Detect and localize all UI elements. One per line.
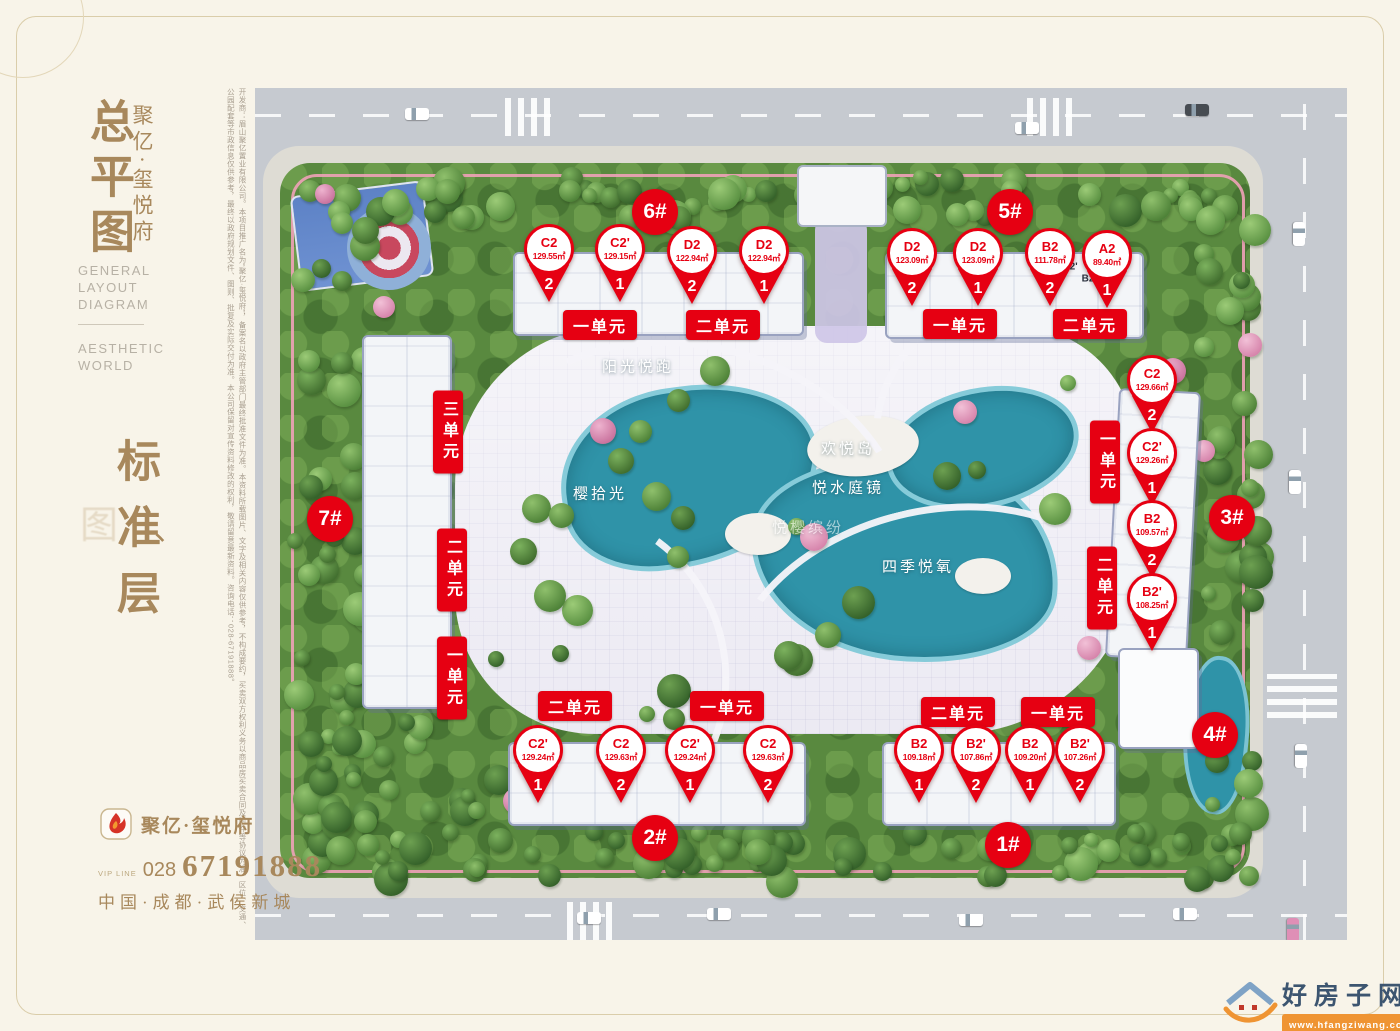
pin-head: B2109.57㎡	[1127, 500, 1177, 550]
unit-area: 89.40㎡	[1093, 256, 1121, 268]
unit-pin: B2109.57㎡2	[1124, 500, 1180, 580]
unit-label: 二单元	[1087, 547, 1117, 630]
tree	[608, 832, 625, 849]
flame-logo-icon	[100, 808, 132, 840]
building-number-badge: 3#	[1209, 495, 1255, 541]
tree	[562, 595, 593, 626]
tree	[284, 680, 314, 710]
pin-head: B2109.20㎡	[1005, 725, 1055, 775]
tree	[1141, 191, 1171, 221]
unit-area: 129.15㎡	[604, 250, 636, 262]
tree	[968, 461, 986, 479]
tree	[893, 196, 921, 224]
unit-number: 1	[1002, 777, 1058, 795]
car	[707, 908, 731, 920]
phone-number: 67191888	[182, 848, 322, 884]
watermark-url: www.hfangziwang.com	[1289, 1020, 1400, 1031]
tree	[327, 373, 361, 407]
tree	[379, 780, 399, 800]
tree	[354, 810, 377, 833]
tree	[388, 861, 408, 881]
car	[1173, 908, 1197, 920]
unit-label: 一单元	[1021, 697, 1095, 727]
unit-type: A2	[1099, 242, 1116, 256]
car	[1287, 918, 1299, 940]
unit-area: 129.26㎡	[1136, 454, 1168, 466]
crosswalk	[505, 98, 553, 136]
unit-label: 二单元	[538, 691, 612, 721]
tree	[294, 650, 310, 666]
tree	[1205, 797, 1220, 812]
tree	[708, 178, 740, 210]
logo-brand-text: 聚亿·玺悦府	[141, 811, 254, 838]
tree	[1078, 183, 1101, 206]
tree	[510, 538, 537, 565]
tree	[1097, 839, 1120, 862]
en-tagline-line: WORLD	[78, 357, 164, 374]
unit-number: 1	[662, 777, 718, 795]
unit-area: 123.09㎡	[962, 254, 994, 266]
tree	[534, 580, 566, 612]
pin-head: C2129.63㎡	[743, 725, 793, 775]
tree	[1239, 214, 1271, 246]
building-number-badge: 1#	[985, 822, 1031, 868]
pin-head: B2'108.25㎡	[1127, 573, 1177, 623]
unit-type: C2'	[1142, 440, 1162, 454]
crosswalk	[1267, 674, 1337, 718]
en-title-line: DIAGRAM	[78, 296, 164, 313]
car	[577, 912, 601, 924]
en-title-line: GENERAL	[78, 262, 164, 279]
tree	[352, 217, 379, 244]
building-4	[1118, 648, 1199, 749]
pin-head: A289.40㎡	[1082, 230, 1132, 280]
pin-head: D2122.94㎡	[739, 226, 789, 276]
tree	[346, 772, 361, 787]
tree	[559, 180, 581, 202]
car	[1289, 470, 1301, 494]
watermark-site-name: 好房子网	[1282, 976, 1400, 1012]
tree	[488, 651, 504, 667]
tree	[552, 645, 569, 662]
car	[1185, 104, 1209, 116]
pin-head: B2'107.86㎡	[951, 725, 1001, 775]
tree	[940, 168, 964, 192]
unit-type: B2'	[966, 737, 986, 751]
unit-pin: C2129.63㎡2	[593, 725, 649, 805]
divider-line	[78, 324, 144, 325]
tree	[1039, 493, 1071, 525]
unit-type: C2	[541, 236, 558, 250]
unit-number: 2	[1052, 777, 1108, 795]
tree	[667, 389, 690, 412]
tree	[895, 177, 910, 192]
logo-block: 聚亿·玺悦府	[100, 808, 254, 840]
pin-head: C2'129.26㎡	[1127, 428, 1177, 478]
watermark: 好房子网 www.hfangziwang.com	[1222, 976, 1400, 1031]
road-lane-marking	[1303, 88, 1306, 940]
tree	[1244, 440, 1273, 469]
tree	[398, 714, 415, 731]
car	[405, 108, 429, 120]
unit-number: 2	[740, 777, 796, 795]
tree	[700, 356, 730, 386]
unit-number: 2	[884, 280, 940, 298]
unit-area: 109.20㎡	[1014, 751, 1046, 763]
unit-area: 129.55㎡	[533, 250, 565, 262]
unit-number: 1	[950, 280, 1006, 298]
building-number-badge: 7#	[307, 496, 353, 542]
tree	[522, 494, 551, 523]
tree	[1184, 866, 1210, 892]
tree	[524, 846, 541, 863]
tree	[1239, 866, 1259, 886]
unit-label: 二单元	[1053, 309, 1127, 339]
watermark-text-block: 好房子网 www.hfangziwang.com	[1282, 976, 1400, 1031]
tree	[468, 802, 485, 819]
tree	[461, 789, 475, 803]
tree	[424, 201, 446, 223]
building-number-badge: 2#	[632, 815, 678, 861]
en-tagline-line: AESTHETIC	[78, 340, 164, 357]
unit-label: 一单元	[437, 637, 467, 720]
unit-pin: D2123.09㎡1	[950, 228, 1006, 308]
tree	[549, 503, 574, 528]
tree	[319, 546, 336, 563]
unit-pin: C2129.66㎡2	[1124, 355, 1180, 435]
corner-arc-decoration	[0, 0, 84, 78]
tree	[1060, 375, 1076, 391]
cherry-blossom-tree	[373, 296, 395, 318]
unit-number: 1	[510, 777, 566, 795]
tree	[1233, 272, 1250, 289]
unit-number: 2	[1022, 280, 1078, 298]
pin-head: B2111.78㎡	[1025, 228, 1075, 278]
unit-pin: B2111.78㎡2	[1022, 228, 1078, 308]
unit-pin: B2109.18㎡1	[891, 725, 947, 805]
unit-pin: C2129.63㎡2	[740, 725, 796, 805]
phone-area-code: 028	[143, 859, 176, 882]
park-feature-label: 欢悦岛	[821, 438, 875, 459]
unit-area: 122.94㎡	[676, 252, 708, 264]
entrance-walkway	[815, 218, 867, 343]
unit-type: C2	[1144, 367, 1161, 381]
unit-area: 122.94㎡	[748, 252, 780, 264]
tree	[312, 259, 331, 278]
unit-label: 二单元	[437, 529, 467, 612]
tree	[329, 684, 345, 700]
unit-number: 1	[592, 276, 648, 294]
english-subtitle: GENERAL LAYOUT DIAGRAM AESTHETIC WORLD	[78, 262, 164, 374]
tree	[339, 710, 354, 725]
unit-label: 一单元	[1090, 421, 1120, 504]
tree	[842, 586, 875, 619]
tree	[1211, 835, 1228, 852]
pin-head: C2129.55㎡	[524, 224, 574, 274]
tree	[1241, 589, 1264, 612]
unit-type: B2	[1144, 512, 1161, 526]
tree	[1127, 824, 1145, 842]
unit-label: 三单元	[433, 391, 463, 474]
tree	[399, 832, 432, 865]
tree	[774, 641, 803, 670]
unit-area: 123.09㎡	[896, 254, 928, 266]
unit-number: 1	[1124, 625, 1180, 643]
unit-label: 二单元	[921, 697, 995, 727]
tree	[486, 192, 515, 221]
unit-type: C2	[760, 737, 777, 751]
tree	[1129, 844, 1151, 866]
pin-head: C2129.63㎡	[596, 725, 646, 775]
unit-area: 107.86㎡	[960, 751, 992, 763]
pin-head: D2122.94㎡	[667, 226, 717, 276]
unit-number: 1	[1124, 480, 1180, 498]
tree	[608, 448, 634, 474]
address-line: 中国·成都·武侯新城	[98, 888, 295, 913]
tree	[595, 848, 614, 867]
tree	[745, 839, 771, 865]
unit-number: 2	[521, 276, 577, 294]
tree	[538, 864, 561, 887]
tree	[299, 475, 323, 499]
tree	[420, 801, 441, 822]
unit-type: D2	[970, 240, 987, 254]
cherry-blossom-tree	[1077, 636, 1101, 660]
tree	[1196, 258, 1223, 285]
unit-number: 1	[891, 777, 947, 795]
unit-type: B2	[911, 737, 928, 751]
tree	[1225, 849, 1241, 865]
cherry-blossom-tree	[590, 418, 616, 444]
unit-pin: B2'107.86㎡2	[948, 725, 1004, 805]
unit-number: 2	[593, 777, 649, 795]
tree	[287, 533, 303, 549]
pin-head: B2'107.26㎡	[1055, 725, 1105, 775]
vip-line-label: VIP LINE	[98, 869, 137, 878]
tree	[1061, 837, 1078, 854]
tree	[1232, 391, 1257, 416]
tree	[326, 836, 355, 865]
tree	[298, 350, 320, 372]
tree	[755, 180, 777, 202]
unit-pin: A289.40㎡1	[1079, 230, 1135, 310]
unit-type: D2	[756, 238, 773, 252]
tree	[933, 462, 961, 490]
park-feature-label: 悦樱缤纷	[772, 517, 844, 538]
tree	[1241, 479, 1259, 497]
tree	[331, 212, 353, 234]
unit-pin: B2'107.26㎡2	[1052, 725, 1108, 805]
brand-vertical: 聚亿·玺悦府	[127, 104, 157, 246]
unit-type: C2'	[528, 737, 548, 751]
unit-area: 108.25㎡	[1136, 599, 1168, 611]
unit-area: 109.18㎡	[903, 751, 935, 763]
tree	[452, 206, 475, 229]
tree	[1194, 337, 1214, 357]
unit-area: 129.24㎡	[522, 751, 554, 763]
tree	[873, 862, 892, 881]
tree	[321, 802, 352, 833]
tree	[657, 674, 691, 708]
tree	[1242, 751, 1262, 771]
unit-type: B2'	[1070, 737, 1090, 751]
unit-type: B2	[1042, 240, 1059, 254]
unit-number: 2	[664, 278, 720, 296]
tree	[913, 170, 928, 185]
pin-head: C2129.66㎡	[1127, 355, 1177, 405]
unit-number: 1	[736, 278, 792, 296]
tree	[946, 203, 969, 226]
tree	[582, 188, 597, 203]
unit-type: C2'	[610, 236, 630, 250]
tree	[1149, 848, 1167, 866]
unit-number: 2	[1124, 552, 1180, 570]
tree	[941, 838, 962, 859]
unit-pin: C2'129.15㎡1	[592, 224, 648, 304]
tree	[1172, 833, 1190, 851]
unit-pin: C2'129.26㎡1	[1124, 428, 1180, 508]
tree	[667, 546, 689, 568]
unit-area: 107.26㎡	[1064, 751, 1096, 763]
tree	[1239, 555, 1273, 589]
unit-pin: C2'129.24㎡1	[662, 725, 718, 805]
park-feature-label: 四季悦氧	[882, 556, 954, 577]
car	[1015, 122, 1039, 134]
tree	[435, 179, 460, 204]
tree	[1084, 833, 1098, 847]
pin-head: D2123.09㎡	[953, 228, 1003, 278]
park-feature-label: 阳光悦跑	[602, 356, 674, 377]
tree	[382, 189, 409, 216]
unit-label: 二单元	[686, 310, 760, 340]
unit-pin: D2123.09㎡2	[884, 228, 940, 308]
unit-number: 1	[1079, 282, 1135, 300]
site-plan-map: 6#5#7#3#4#2#1#一单元二单元一单元二单元三单元二单元一单元一单元二单…	[255, 88, 1347, 940]
unit-area: 129.63㎡	[605, 751, 637, 763]
unit-label: 一单元	[923, 309, 997, 339]
cherry-blossom-tree	[315, 184, 335, 204]
pin-head: C2'129.24㎡	[513, 725, 563, 775]
tree	[375, 850, 390, 865]
unit-area: 129.24㎡	[674, 751, 706, 763]
unit-label: 一单元	[690, 691, 764, 721]
tree	[1234, 769, 1263, 798]
house-icon	[1222, 976, 1278, 1028]
unit-pin: C2'129.24㎡1	[510, 725, 566, 805]
tree	[629, 420, 652, 443]
unit-pin: C2129.55㎡2	[521, 224, 577, 304]
tree	[331, 352, 353, 374]
car	[1295, 744, 1307, 768]
unit-type: B2'	[1142, 585, 1162, 599]
unit-number: 2	[948, 777, 1004, 795]
poster: 总平图 图 聚亿·玺悦府 GENERAL LAYOUT DIAGRAM AEST…	[0, 0, 1400, 1031]
tree	[671, 506, 695, 530]
phone-row: VIP LINE 028 67191888	[98, 848, 322, 884]
tree	[1201, 586, 1216, 601]
pin-head: B2109.18㎡	[894, 725, 944, 775]
car	[1293, 222, 1305, 246]
unit-area: 111.78㎡	[1034, 254, 1065, 266]
pin-head: C2'129.15㎡	[595, 224, 645, 274]
tree	[815, 622, 841, 648]
unit-type: D2	[684, 238, 701, 252]
tree	[298, 564, 320, 586]
unit-area: 129.66㎡	[1136, 381, 1168, 393]
tree	[469, 861, 485, 877]
tree	[291, 268, 315, 292]
tree	[834, 858, 852, 876]
tree	[316, 756, 332, 772]
tree	[298, 731, 324, 757]
unit-type: D2	[904, 240, 921, 254]
unit-pin: B2'108.25㎡1	[1124, 573, 1180, 653]
park-feature-label: 樱拾光	[573, 483, 627, 504]
tree	[642, 482, 671, 511]
entrance-gate	[797, 165, 887, 227]
tree	[332, 726, 362, 756]
en-title-line: LAYOUT	[78, 279, 164, 296]
tree	[332, 271, 352, 291]
building-number-badge: 4#	[1192, 712, 1238, 758]
car	[959, 914, 983, 926]
park-feature-label: 悦水庭镜	[812, 477, 884, 498]
watermark-url-box: www.hfangziwang.com	[1282, 1014, 1400, 1031]
cherry-blossom-tree	[1238, 333, 1262, 357]
tree	[488, 828, 513, 853]
tree	[1216, 297, 1244, 325]
unit-number: 2	[1124, 407, 1180, 425]
tree	[1196, 206, 1225, 235]
unit-pin: D2122.94㎡2	[664, 226, 720, 306]
cherry-blossom-tree	[953, 400, 977, 424]
tree	[717, 838, 739, 860]
unit-pin: D2122.94㎡1	[736, 226, 792, 306]
tree	[1109, 194, 1142, 227]
tree	[1052, 865, 1068, 881]
floor-label-pause-mark: 、	[154, 505, 184, 549]
tree	[691, 825, 707, 841]
tree	[1229, 822, 1252, 845]
unit-pin: B2109.20㎡1	[1002, 725, 1058, 805]
tree	[639, 706, 655, 722]
tree	[373, 746, 394, 767]
tree	[1209, 620, 1234, 645]
unit-type: C2	[613, 737, 630, 751]
unit-type: C2'	[680, 737, 700, 751]
unit-type: B2	[1022, 737, 1039, 751]
unit-area: 129.63㎡	[752, 751, 784, 763]
pin-head: D2123.09㎡	[887, 228, 937, 278]
unit-area: 109.57㎡	[1136, 526, 1168, 538]
unit-label: 一单元	[563, 310, 637, 340]
tree	[442, 824, 459, 841]
pin-head: C2'129.24㎡	[665, 725, 715, 775]
